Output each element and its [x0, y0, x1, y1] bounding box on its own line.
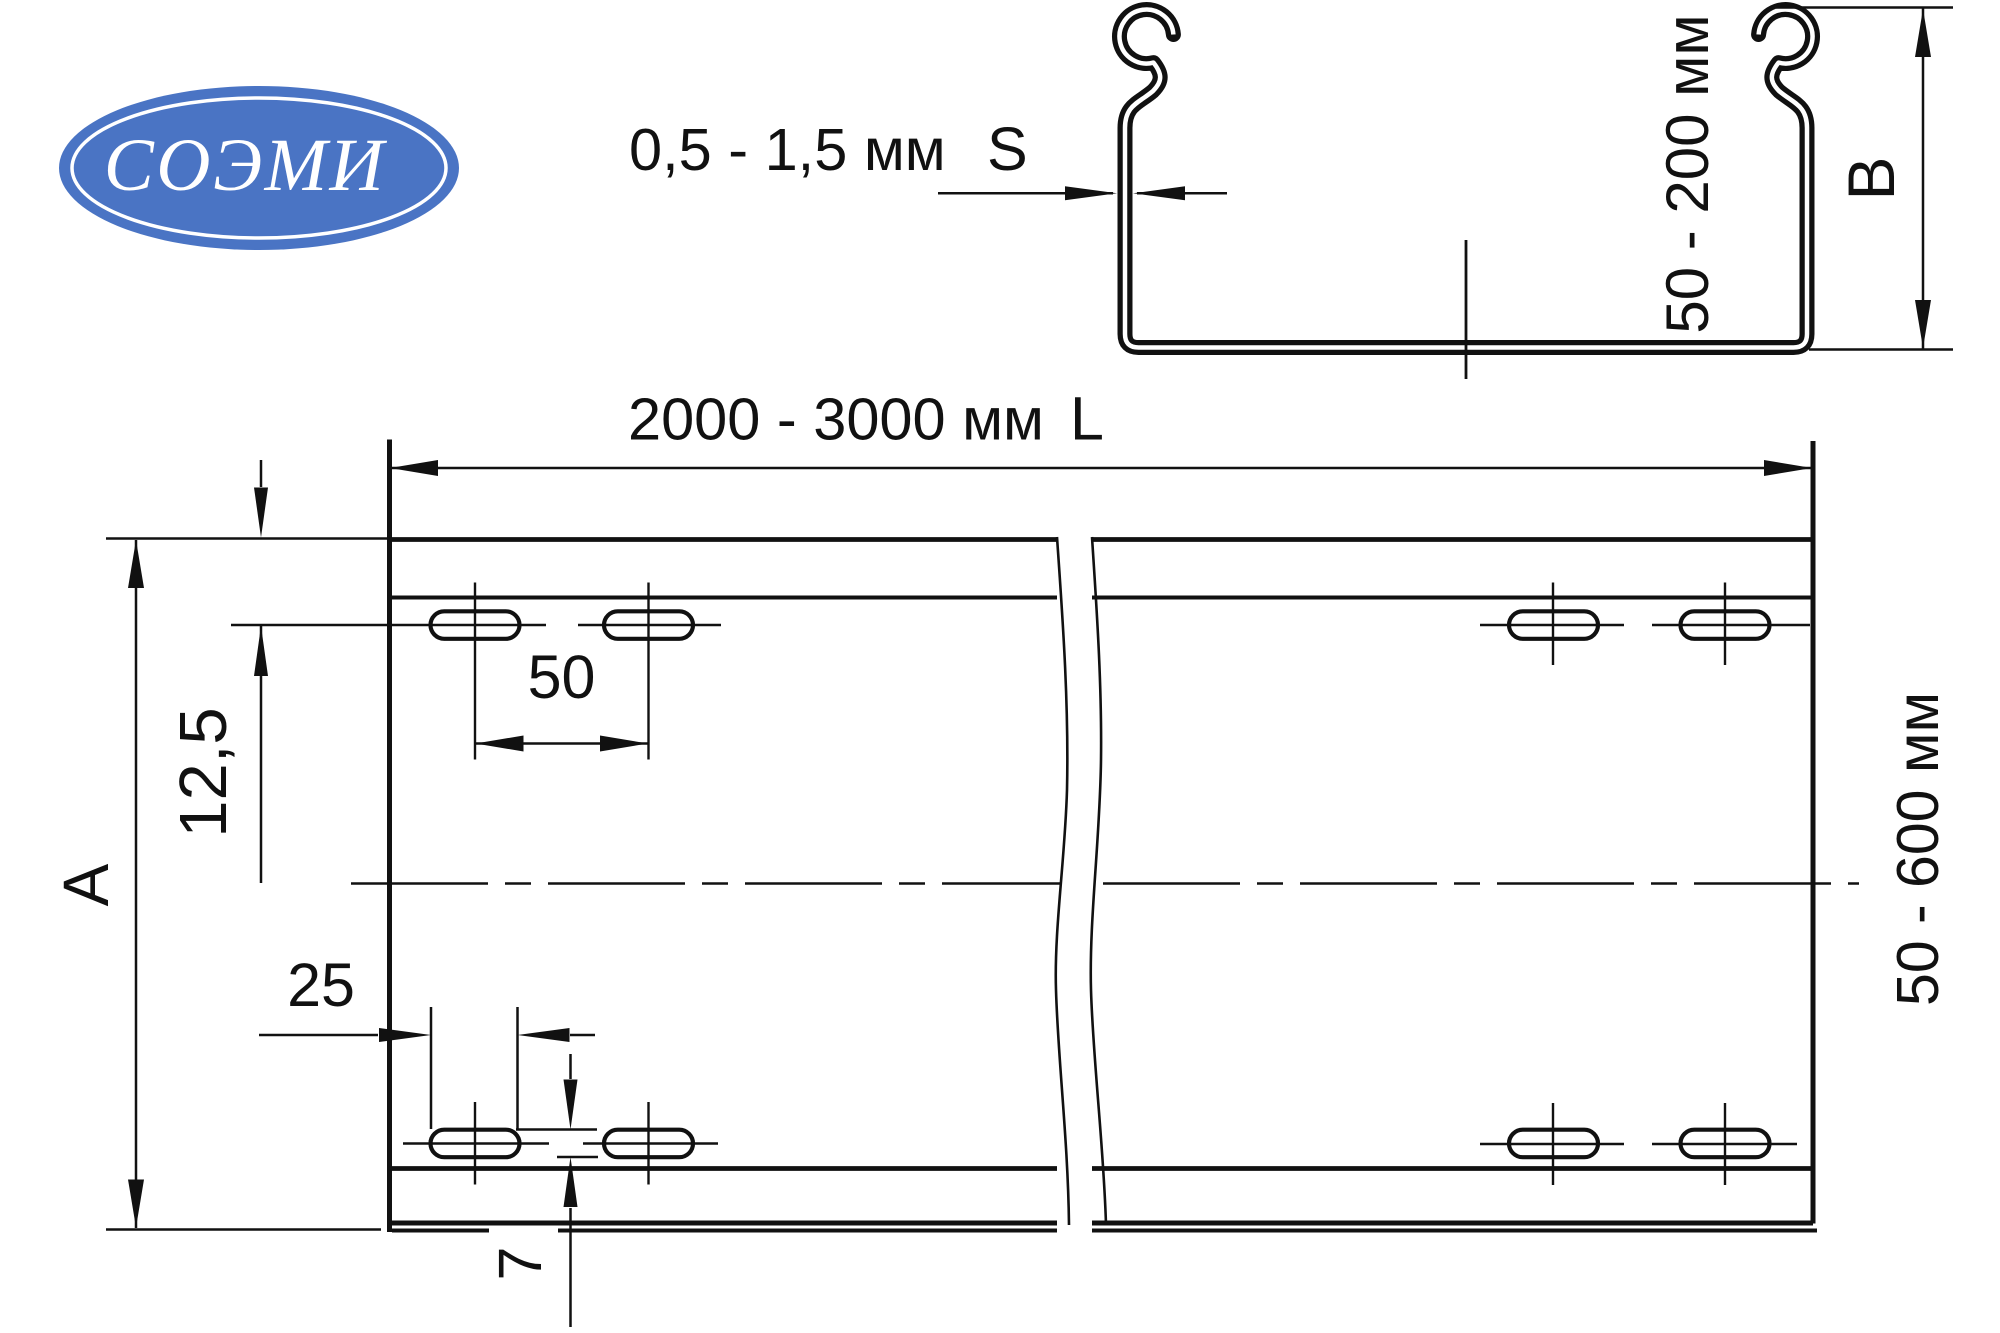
svg-text:L: L: [1070, 385, 1104, 453]
svg-text:7: 7: [486, 1247, 554, 1281]
svg-text:A: A: [50, 863, 122, 906]
svg-text:0,5 - 1,5 мм: 0,5 - 1,5 мм: [629, 116, 946, 183]
svg-text:50: 50: [528, 643, 596, 711]
svg-text:2000 - 3000 мм: 2000 - 3000 мм: [628, 386, 1044, 453]
svg-text:СОЭМИ: СОЭМИ: [104, 124, 388, 207]
svg-text:12,5: 12,5: [166, 707, 241, 837]
svg-text:25: 25: [287, 951, 355, 1019]
svg-text:B: B: [1834, 156, 1908, 200]
svg-text:50 - 200 мм: 50 - 200 мм: [1654, 14, 1721, 333]
svg-text:50 - 600 мм: 50 - 600 мм: [1885, 692, 1951, 1006]
svg-text:S: S: [987, 115, 1028, 183]
